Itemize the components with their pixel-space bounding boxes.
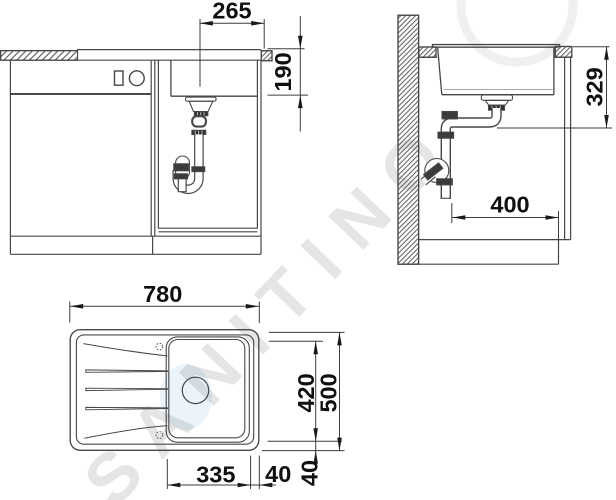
svg-text:40: 40 [265, 461, 291, 487]
svg-text:780: 780 [143, 281, 182, 307]
svg-text:190: 190 [270, 52, 296, 91]
svg-text:265: 265 [212, 0, 251, 24]
svg-text:40: 40 [296, 460, 322, 486]
svg-text:400: 400 [490, 192, 529, 218]
svg-text:329: 329 [582, 67, 608, 106]
svg-text:500: 500 [315, 373, 341, 412]
svg-text:335: 335 [196, 462, 235, 488]
